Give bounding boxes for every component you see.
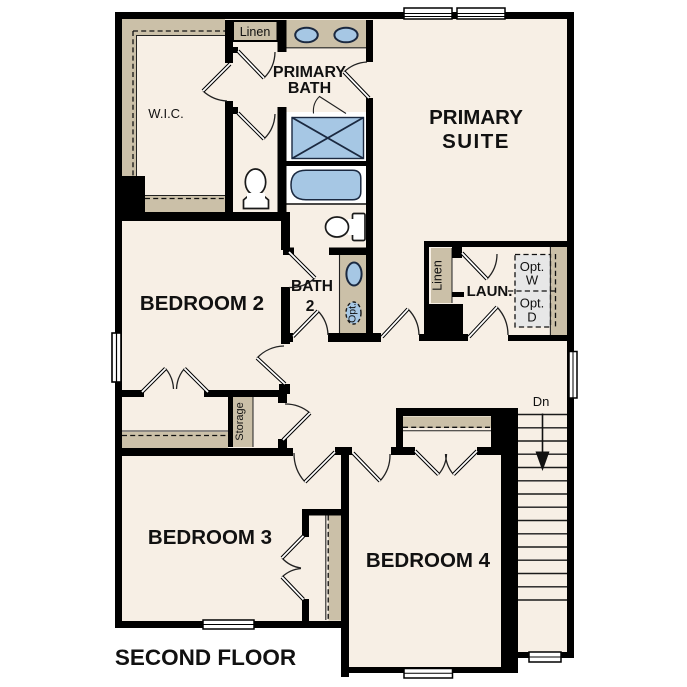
- svg-text:BEDROOM 3: BEDROOM 3: [148, 526, 272, 549]
- svg-text:2: 2: [306, 298, 315, 315]
- svg-text:SUITE: SUITE: [442, 130, 510, 153]
- svg-text:PRIMARY: PRIMARY: [273, 64, 347, 81]
- svg-text:Linen: Linen: [431, 260, 445, 291]
- svg-text:Storage: Storage: [234, 402, 246, 441]
- svg-text:BEDROOM 4: BEDROOM 4: [366, 549, 491, 572]
- svg-text:W.I.C.: W.I.C.: [148, 106, 183, 121]
- svg-text:BEDROOM 2: BEDROOM 2: [140, 292, 264, 315]
- svg-text:BATH: BATH: [291, 278, 333, 295]
- svg-text:W: W: [526, 273, 539, 288]
- svg-text:LAUN.: LAUN.: [467, 283, 513, 300]
- svg-text:BATH: BATH: [288, 80, 331, 97]
- svg-text:D: D: [527, 310, 536, 325]
- svg-text:SECOND FLOOR: SECOND FLOOR: [115, 645, 296, 670]
- svg-text:Linen: Linen: [240, 25, 271, 39]
- svg-text:Opt.: Opt.: [347, 303, 359, 323]
- svg-text:Opt.: Opt.: [520, 296, 545, 311]
- svg-text:PRIMARY: PRIMARY: [429, 106, 523, 129]
- svg-text:Dn: Dn: [533, 394, 550, 409]
